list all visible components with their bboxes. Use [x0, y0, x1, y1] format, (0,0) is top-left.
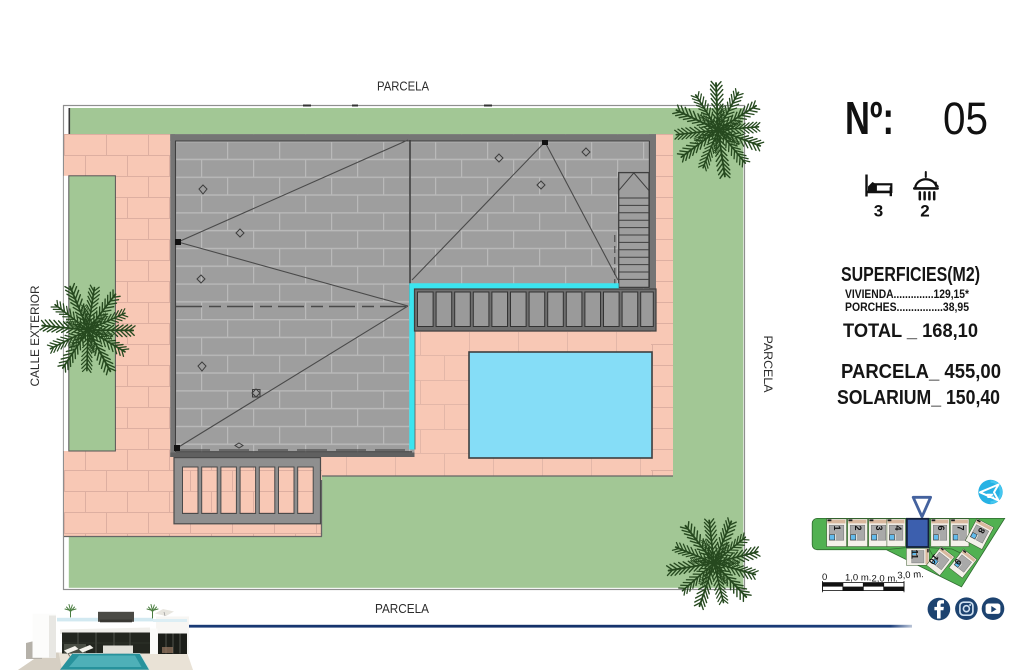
svg-text:4: 4 — [893, 526, 903, 531]
svg-text:7: 7 — [956, 526, 966, 531]
svg-text:CALLE EXTERIOR: CALLE EXTERIOR — [28, 285, 42, 386]
svg-text:PARCELA_ 455,00: PARCELA_ 455,00 — [841, 360, 1001, 383]
svg-text:05: 05 — [943, 93, 988, 144]
svg-text:Nº:: Nº: — [845, 92, 894, 144]
svg-text:3: 3 — [874, 526, 884, 531]
svg-text:1: 1 — [832, 526, 842, 531]
svg-text:1,0 m.: 1,0 m. — [845, 573, 871, 584]
svg-text:PARCELA: PARCELA — [761, 336, 775, 393]
svg-text:2: 2 — [920, 202, 929, 221]
svg-text:TOTAL _ 168,10: TOTAL _ 168,10 — [843, 320, 978, 342]
svg-text:6: 6 — [936, 526, 946, 531]
svg-text:PORCHES................38,95: PORCHES................38,95 — [845, 300, 969, 314]
svg-text:3,0 m.: 3,0 m. — [897, 569, 924, 581]
svg-text:SUPERFICIES(M2): SUPERFICIES(M2) — [841, 264, 980, 286]
svg-text:SOLARIUM_ 150,40: SOLARIUM_ 150,40 — [837, 386, 1000, 409]
svg-text:11: 11 — [910, 550, 920, 560]
svg-text:2: 2 — [853, 526, 863, 531]
svg-text:VIVIENDA..............129,15*: VIVIENDA..............129,15* — [845, 287, 969, 301]
svg-text:PARCELA: PARCELA — [375, 602, 430, 616]
svg-text:3: 3 — [874, 202, 883, 221]
svg-text:PARCELA: PARCELA — [377, 79, 429, 94]
